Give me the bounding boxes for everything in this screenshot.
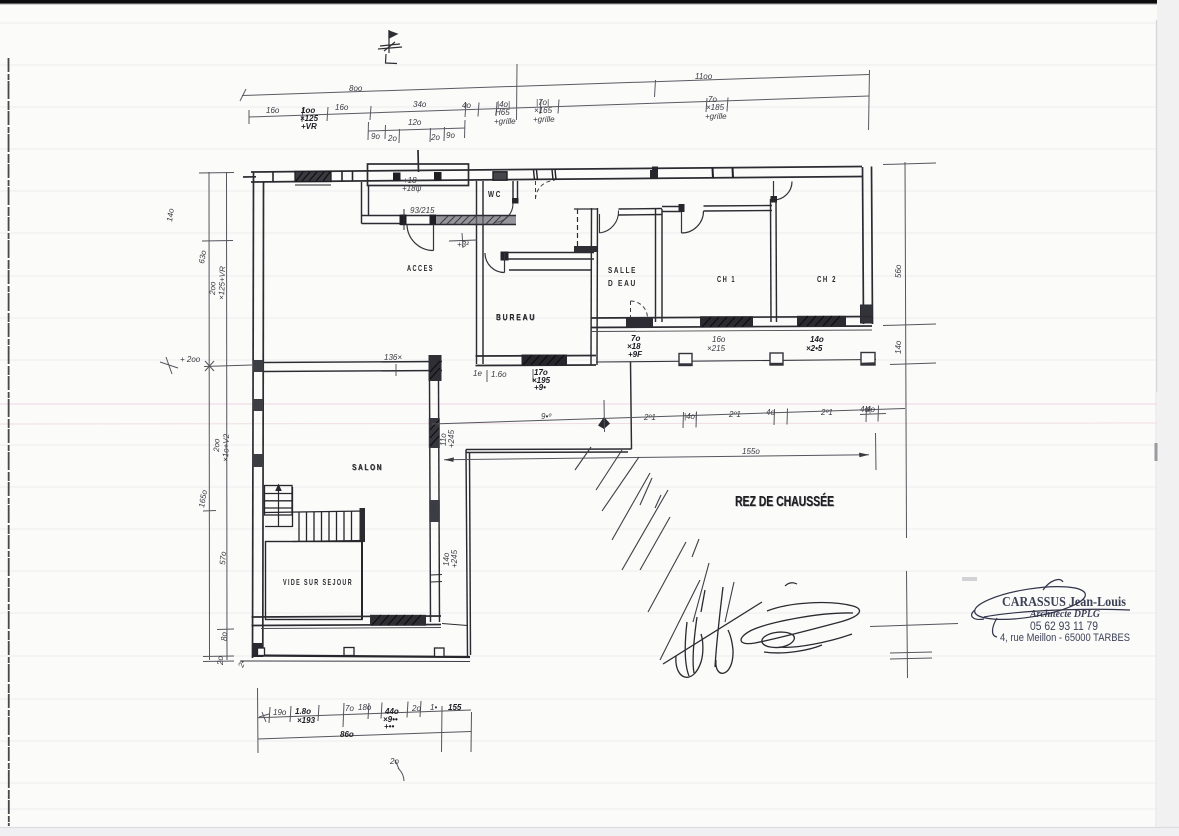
svg-text:|4o|: |4o|	[684, 412, 697, 421]
svg-text:4o: 4o	[462, 101, 471, 110]
svg-text:×215: ×215	[707, 344, 726, 353]
svg-text:155o: 155o	[742, 447, 760, 456]
svg-text:9•º: 9•º	[541, 412, 552, 421]
svg-text:56o: 56o	[894, 264, 903, 278]
svg-text:7o: 7o	[345, 704, 354, 713]
svg-text:2o: 2o	[430, 133, 440, 142]
svg-text:2o: 2o	[389, 757, 399, 766]
svg-text:+••: +••	[384, 722, 394, 731]
svg-text:4o: 4o	[866, 405, 875, 414]
svg-text:18o: 18o	[358, 703, 372, 712]
svg-text:57o: 57o	[218, 551, 228, 566]
svg-text:+245: +245	[447, 429, 456, 448]
svg-text:D EAU: D EAU	[608, 278, 637, 288]
svg-text:1•: 1•	[430, 703, 437, 712]
svg-text:+grille: +grille	[494, 117, 516, 126]
svg-text:8o: 8o	[220, 632, 229, 641]
svg-text:H65: H65	[495, 108, 510, 117]
svg-text:14o: 14o	[810, 335, 824, 344]
svg-text:2o: 2o	[216, 656, 225, 666]
svg-text:4o: 4o	[766, 408, 775, 417]
svg-text:×2•5: ×2•5	[806, 344, 823, 353]
svg-text:ACCES: ACCES	[407, 263, 434, 273]
svg-text:2o: 2o	[387, 134, 397, 143]
svg-text:×165: ×165	[534, 106, 553, 115]
svg-text:+ 2oo: + 2oo	[180, 355, 201, 364]
svg-text:11oo: 11oo	[695, 72, 713, 81]
svg-text:155: 155	[448, 703, 462, 712]
svg-text:14o: 14o	[894, 340, 903, 354]
svg-text:REZ DE CHAUSSÉE: REZ DE CHAUSSÉE	[736, 494, 835, 511]
svg-text:2oo: 2oo	[208, 281, 218, 296]
svg-text:+18ψ: +18ψ	[402, 184, 422, 193]
svg-text:×193: ×193	[297, 716, 316, 725]
svg-text:+VR: +VR	[301, 122, 317, 131]
svg-text:SALON: SALON	[353, 463, 384, 473]
svg-text:16o: 16o	[266, 106, 280, 115]
svg-text:×1o+V2: ×1o+V2	[221, 433, 231, 462]
svg-text:14o: 14o	[165, 207, 176, 222]
svg-text:×185: ×185	[706, 103, 725, 112]
svg-text:4, rue Meillon - 65000 TARBES: 4, rue Meillon - 65000 TARBES	[1000, 632, 1130, 644]
svg-text:16o: 16o	[712, 335, 726, 344]
svg-text:2º1: 2º1	[728, 410, 741, 419]
svg-text:+245: +245	[450, 549, 459, 568]
svg-text:93/215: 93/215	[410, 206, 435, 215]
svg-text:136×: 136×	[384, 353, 402, 362]
svg-text:+9•: +9•	[534, 383, 546, 392]
svg-text:3UREAU: 3UREAU	[497, 313, 537, 323]
svg-text:2o: 2o	[411, 704, 421, 713]
svg-text:CH 1: CH 1	[717, 274, 736, 284]
svg-text:SALLE: SALLE	[608, 265, 637, 275]
svg-text:12o: 12o	[408, 118, 422, 127]
svg-text:1e: 1e	[473, 369, 482, 378]
svg-text:16o: 16o	[335, 103, 349, 112]
svg-text:1.6o: 1.6o	[491, 370, 507, 379]
svg-text:8oo: 8oo	[349, 84, 363, 93]
svg-text:2oo: 2oo	[212, 438, 222, 453]
svg-text:CH 2: CH 2	[817, 274, 837, 284]
svg-text:19o: 19o	[273, 708, 287, 717]
svg-text:34o: 34o	[413, 100, 427, 109]
svg-text:2º1: 2º1	[643, 413, 656, 422]
svg-text:+9F: +9F	[628, 350, 643, 359]
svg-text:VIDE SUR SEJOUR: VIDE SUR SEJOUR	[283, 577, 353, 587]
svg-text:+grille: +grille	[533, 115, 555, 124]
svg-text:9o: 9o	[371, 132, 380, 141]
svg-text:2º1: 2º1	[820, 408, 833, 417]
svg-text:WC: WC	[488, 189, 502, 199]
svg-text:×125+VR: ×125+VR	[217, 266, 227, 300]
svg-text:86o: 86o	[340, 730, 354, 739]
svg-text:+grille: +grille	[705, 112, 727, 121]
svg-text:CARASSUS Jean-Louis: CARASSUS Jean-Louis	[1002, 594, 1126, 609]
svg-text:9o: 9o	[446, 131, 455, 140]
svg-text:1.8o: 1.8o	[295, 707, 311, 716]
